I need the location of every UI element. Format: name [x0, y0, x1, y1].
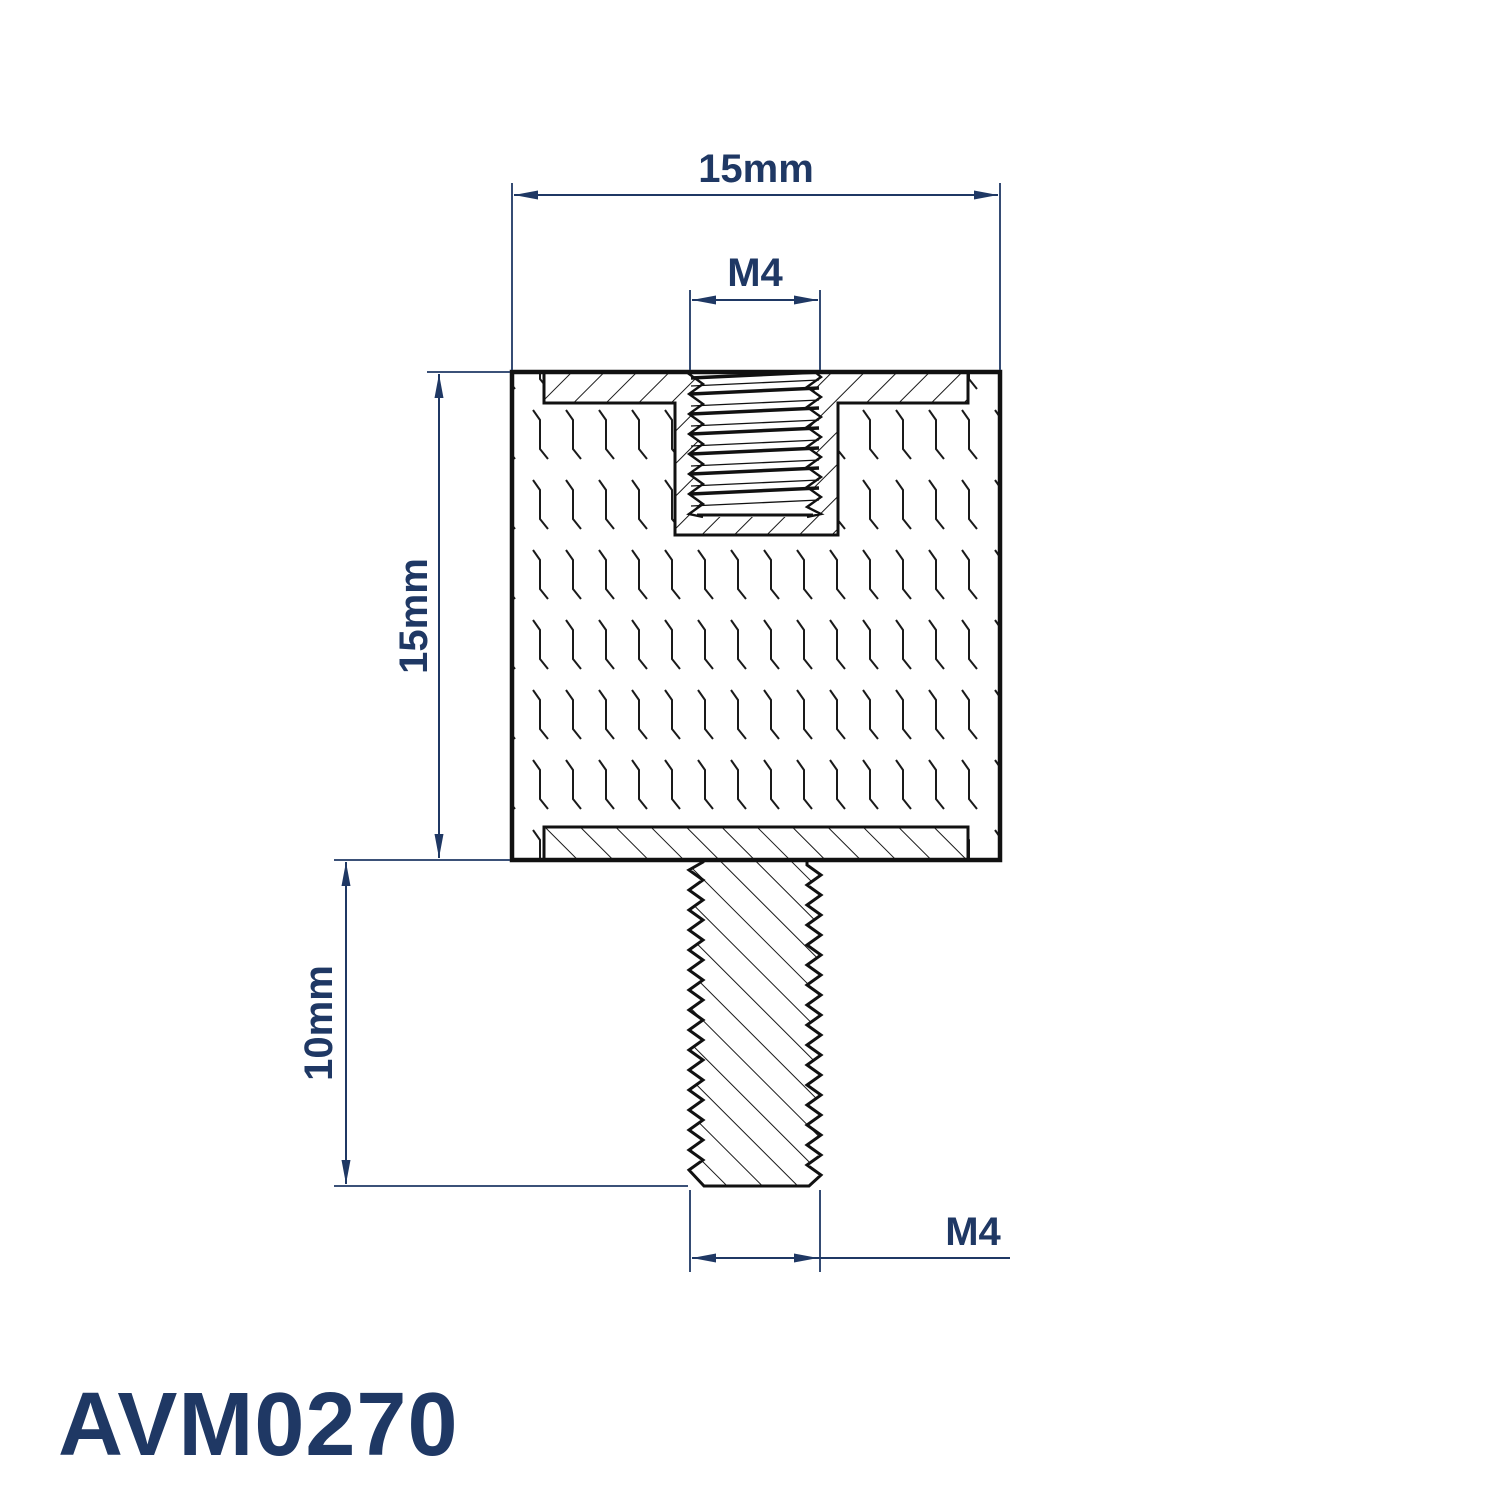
dim-top-width-label: 15mm — [698, 147, 814, 191]
dim-stud-thread-label: M4 — [945, 1210, 1001, 1254]
dim-stud-length-label: 10mm — [297, 965, 341, 1081]
internal-thread-hole — [689, 372, 821, 517]
dim-body-height: 15mm — [334, 372, 510, 860]
dim-stud-length: 10mm — [297, 862, 688, 1186]
arrow-right-icon — [974, 191, 998, 200]
arrow-left-icon — [692, 296, 716, 305]
arrow-up-icon — [435, 374, 444, 398]
part-number: AVM0270 — [58, 1375, 459, 1475]
bottom-insert-section — [544, 827, 968, 1186]
bottom-insert-hatch — [544, 827, 968, 1186]
arrow-down-icon — [435, 834, 444, 858]
dim-body-height-label: 15mm — [392, 558, 436, 674]
arrow-left-icon — [692, 1254, 716, 1263]
arrow-down-icon — [342, 1160, 351, 1184]
arrow-right-icon — [794, 1254, 818, 1263]
arrow-right-icon — [794, 296, 818, 305]
dim-hole-thread-label: M4 — [727, 251, 783, 295]
arrow-up-icon — [342, 862, 351, 886]
dim-hole-thread: M4 — [690, 251, 820, 370]
arrow-left-icon — [514, 191, 538, 200]
technical-drawing-canvas: 15mm M4 15mm 10mm M4 AVM0270 — [0, 0, 1500, 1500]
dim-stud-thread: M4 — [690, 1190, 1010, 1272]
drawing-page: 15mm M4 15mm 10mm M4 AVM0270 — [0, 0, 1500, 1500]
